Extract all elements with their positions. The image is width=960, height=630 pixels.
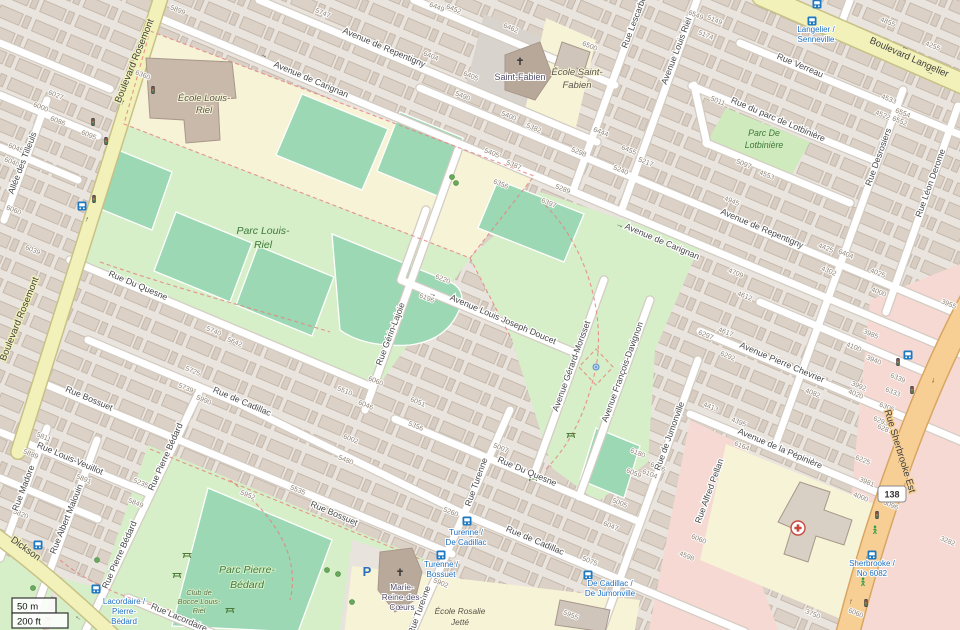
traffic-light-icon: [896, 358, 900, 366]
poi-label: Parc Pierre-: [219, 564, 276, 576]
transit-stop-label: De Jumonville: [585, 589, 636, 598]
bus-stop-icon: [78, 202, 87, 211]
transit-stop-label: Senneville: [798, 35, 835, 44]
transit-stop-label: Bossuet: [427, 570, 457, 579]
poi-label: Club de: [186, 588, 211, 597]
poi-label: Cœurs: [389, 602, 414, 612]
poi-label: Marie-: [390, 582, 414, 592]
poi-label: École Louis-: [178, 93, 230, 104]
transit-stop-label: Turenne /: [449, 528, 484, 537]
poi-label: Lotbinière: [745, 140, 784, 150]
transit-stop-label: No 6082: [857, 569, 888, 578]
traffic-light-icon: [864, 599, 868, 607]
transit-stop-label: Lacordaire /: [103, 597, 146, 606]
scale-imperial: 200 ft: [17, 617, 41, 628]
fountain-icon: [593, 364, 599, 370]
map-canvas[interactable]: →→→→→→→→→→→→→→→→→→ 589963606027600060866…: [0, 0, 960, 630]
transit-stop-label: Pierre-: [112, 607, 136, 616]
parking-icon: P: [363, 564, 372, 579]
poi-label: École Rosalie: [435, 606, 486, 616]
traffic-light-icon: [910, 386, 914, 394]
tree-icon: [95, 558, 100, 563]
poi-label: Riel: [193, 606, 206, 615]
poi-label: Riel: [254, 239, 273, 251]
transit-stop-label: Langelier /: [797, 25, 835, 34]
bus-stop-icon: [904, 351, 913, 360]
bus-stop-icon: [437, 551, 446, 560]
poi-label: École Saint-: [551, 67, 602, 78]
transit-stop-label: De Cadillac /: [587, 579, 633, 588]
tree-icon: [325, 568, 330, 573]
tree-icon: [454, 181, 459, 186]
tree-icon: [350, 600, 355, 605]
map-viewport: →→→→→→→→→→→→→→→→→→ 589963606027600060866…: [0, 0, 960, 630]
traffic-light-icon: [91, 118, 95, 126]
tree-icon: [31, 586, 36, 591]
transit-stop-label: Bédard: [111, 617, 137, 626]
transit-stop-label: De Cadillac: [446, 538, 487, 547]
route-badge-text: 138: [884, 490, 899, 500]
tree-icon: [336, 572, 341, 577]
traffic-light-icon: [151, 86, 155, 94]
traffic-light-icon: [92, 195, 96, 203]
poi-label: Bocce Louis-: [178, 597, 221, 606]
bus-stop-icon: [813, 0, 822, 9]
traffic-light-icon: [875, 511, 879, 519]
transit-stop-label: Turenne /: [424, 560, 459, 569]
poi-label: Saint-Fabien: [494, 72, 545, 82]
poi-label: Parc Louis-: [236, 225, 290, 237]
poi-label: Riel: [196, 105, 213, 116]
hospital-cross-icon: [791, 521, 805, 535]
bus-stop-icon: [463, 517, 472, 526]
transit-stop-label: Sherbrooke /: [849, 559, 896, 568]
poi-label: Reine-des-: [382, 592, 423, 602]
traffic-light-icon: [104, 137, 108, 145]
poi-label: Jetté: [450, 617, 469, 627]
poi-label: Fabien: [562, 80, 591, 91]
poi-label: Bédard: [230, 579, 265, 591]
tree-icon: [450, 175, 455, 180]
scale-metric: 50 m: [17, 602, 38, 613]
route-badge-138: 138: [878, 486, 906, 502]
poi-label: Parc De: [748, 128, 780, 138]
